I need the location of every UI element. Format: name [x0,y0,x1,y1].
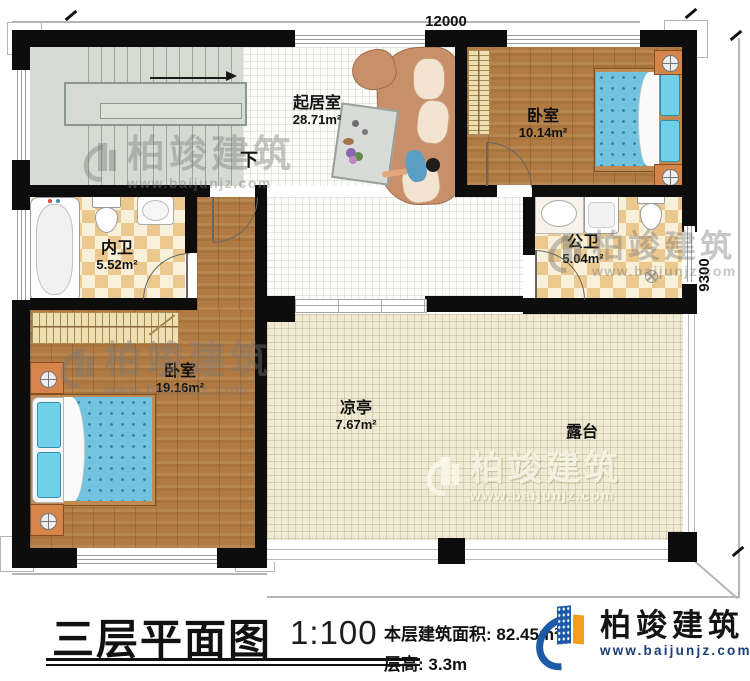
roof-outline-top [12,21,640,23]
wall [425,296,523,312]
bed-pillow [660,120,680,162]
terrace-label: 露台 [522,424,642,442]
company-logo: 柏竣建筑 www.baijunjz.com [538,602,750,666]
washing-machine-drum [588,202,615,228]
window [77,552,217,564]
window-sill-line [12,573,267,575]
title-underline [46,658,420,661]
stair-down-label: 下 [240,146,258,172]
door-leaf [212,197,214,241]
lamp-icon [40,513,57,530]
public-bath-label: 公卫 5.04m² [523,234,643,267]
roof-outline-bottom [267,596,740,598]
roof-outline-diagonal [695,561,739,599]
dimension-right: 9300 [696,235,714,315]
window [295,32,425,45]
bedroom-top-label: 卧室 10.14m² [483,108,603,141]
nightstand [30,362,64,394]
company-name: 柏竣建筑 [600,610,750,641]
floor-height-value: 3.3m [428,655,467,674]
wall [12,30,30,70]
wall [12,30,295,47]
stair-direction-arrow [150,77,228,79]
wall [185,185,197,253]
sink-basin [142,200,169,221]
lamp-icon [40,371,57,388]
floor-height-label: 层高: [384,655,424,674]
floor-area-info: 本层建筑面积: 82.45m² [384,620,560,645]
bathtub-faucet [56,199,60,203]
terrace-railing-right [683,314,697,540]
floor-plan: 下 [0,0,750,681]
lamp-icon [662,55,679,72]
company-website: www.baijunjz.com [600,644,750,658]
terrace-pillar [438,538,465,564]
break-mark [685,8,698,19]
sofa-cushion [413,58,445,100]
person-head [426,158,440,172]
sliding-door [295,299,427,313]
nightstand [30,504,64,536]
stair-arrowhead-icon [226,71,237,81]
break-mark [730,30,743,41]
dimension-top: 12000 [398,13,494,30]
terrace-railing-bottom [267,540,697,562]
plan-scale: 1:100 [290,614,378,652]
wall [455,30,467,186]
window [14,210,28,300]
title-underline [46,664,420,666]
bed-pillow [37,402,61,448]
floor-area-label: 本层建筑面积: [384,625,492,644]
window [507,32,640,45]
wall [532,185,697,197]
door-leaf [486,142,488,186]
bed-pillow [660,74,680,116]
floor-drain-icon [645,270,658,283]
break-mark [65,10,78,21]
window [14,70,28,160]
stair-rail-slot [100,103,242,119]
company-logo-icon [538,602,592,666]
window [684,226,695,282]
inner-bath-label: 内卫 5.52m² [57,240,177,273]
wall [255,185,267,568]
table-tray [343,138,354,145]
wall [523,298,697,314]
wall [12,548,77,568]
roof-outline-right [738,38,740,597]
floor-height-info: 层高: 3.3m [384,650,467,675]
nightstand [654,50,684,75]
bed-blanket-fold [638,72,659,166]
wall [682,30,697,232]
wall [267,296,295,322]
bedroom-left-label: 卧室 19.16m² [120,363,240,396]
terrace-pillar [668,532,697,562]
pavilion-label: 凉亭 7.67m² [296,400,416,433]
bed-pillow [37,452,61,498]
table-cup [362,129,368,135]
wall [12,300,30,568]
table-flower [349,156,357,164]
sink-basin [541,200,577,227]
door-leaf [186,253,188,298]
living-room-label: 起居室 28.71m² [257,95,377,128]
living-room-floor-lower [267,197,523,299]
lamp-icon [662,169,679,186]
bathtub-faucet [48,199,52,203]
wall [12,185,210,197]
